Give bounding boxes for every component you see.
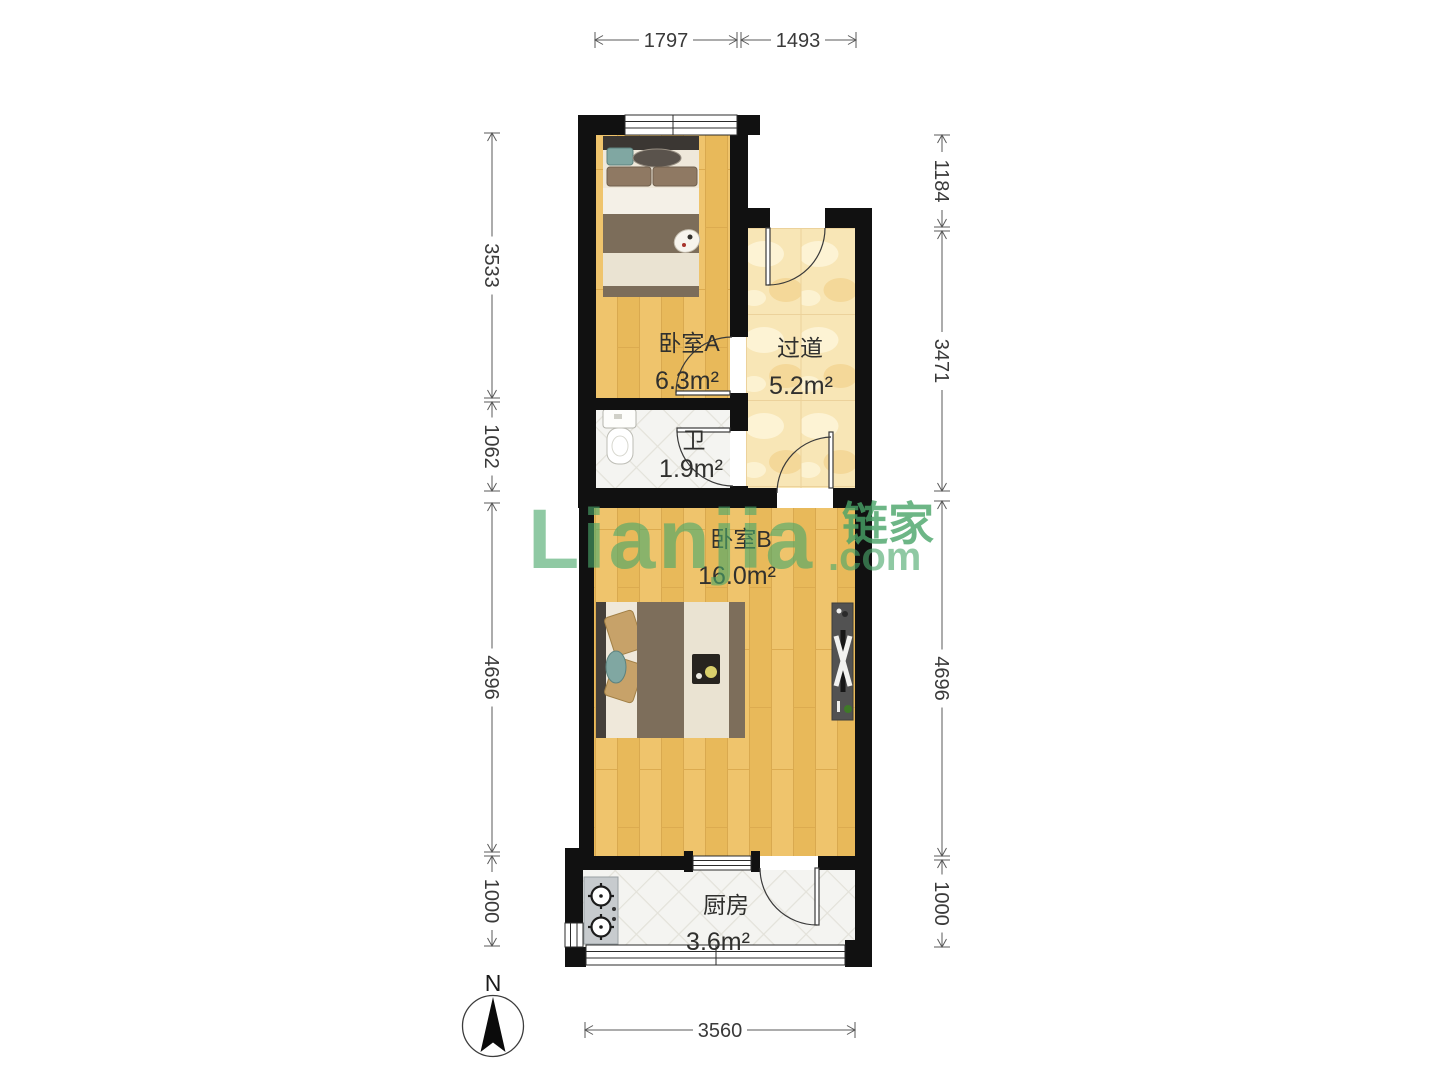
stove-knob — [612, 917, 616, 921]
wall-segment — [818, 856, 872, 870]
kitchen-label: 厨房 — [703, 892, 749, 918]
kitchen-pass-window — [693, 856, 751, 870]
toilet — [603, 409, 636, 464]
stove — [584, 877, 618, 944]
radiator — [832, 603, 853, 720]
watermark: Lianjia .com 链家 — [528, 492, 934, 586]
bedroom-a-label: 卧室A — [658, 330, 720, 356]
burner-dot — [599, 925, 603, 929]
floorplan-page: 卧室A 6.3m² 过道 5.2m² 卫 1.9m² 卧室B 16.0m² 厨房… — [0, 0, 1440, 1080]
svg-text:1000: 1000 — [480, 879, 502, 924]
svg-text:3533: 3533 — [480, 243, 502, 288]
dim-label: 4696 — [929, 650, 955, 708]
bed-a-remote-dot-red — [682, 243, 686, 247]
bedroom-a-area: 6.3m² — [655, 367, 719, 395]
svg-text:1493: 1493 — [776, 30, 821, 52]
bed-a-remote-dot-dark — [688, 235, 693, 240]
dim-label: 3471 — [929, 332, 955, 390]
bathroom-label: 卫 — [683, 427, 706, 453]
svg-text:1000: 1000 — [930, 881, 952, 926]
dim-label: 1493 — [771, 27, 825, 53]
svg-text:1062: 1062 — [480, 424, 502, 469]
dim-label: 1184 — [929, 152, 955, 210]
radiator-mark — [837, 701, 840, 712]
compass: N — [463, 970, 524, 1057]
wall-segment — [730, 115, 748, 337]
dim-label: 1000 — [929, 875, 955, 933]
svg-text:4696: 4696 — [480, 655, 502, 700]
dim-label: 3560 — [693, 1017, 747, 1043]
dim-label: 1062 — [479, 418, 505, 476]
dim-label: 3533 — [479, 237, 505, 295]
burner-dot — [599, 894, 603, 898]
radiator-knob — [837, 609, 842, 614]
plant-icon — [844, 705, 852, 713]
bedroom-b-bed — [596, 602, 745, 738]
bed-b-teal-cushion — [606, 651, 626, 683]
watermark-brand: Lianjia — [528, 492, 815, 586]
window-cap — [684, 851, 693, 872]
dim-label: 1797 — [639, 27, 693, 53]
stove-knob — [612, 907, 616, 911]
wall-segment — [578, 398, 748, 410]
door-leaf — [766, 228, 770, 285]
wall-segment — [565, 947, 586, 967]
dim-label: 4696 — [479, 649, 505, 707]
wall-segment — [746, 208, 770, 228]
svg-text:3560: 3560 — [698, 1020, 743, 1042]
bed-a-sheet — [603, 188, 699, 214]
bedroom-a-window — [625, 115, 737, 135]
wall-segment — [855, 208, 872, 967]
kitchen-west-window — [565, 923, 583, 947]
wall-segment — [578, 115, 596, 508]
window-cap — [751, 851, 760, 872]
hallway-area: 5.2m² — [769, 372, 833, 400]
hallway-label: 过道 — [777, 335, 823, 361]
bed-a-pillow-left — [607, 167, 651, 186]
door-leaf — [815, 868, 819, 925]
wall-segment — [730, 410, 748, 431]
door-leaf — [829, 432, 833, 488]
bed-b-tray-bowl — [705, 666, 717, 678]
bed-a-pillow-right — [653, 167, 697, 186]
svg-text:4696: 4696 — [930, 656, 952, 701]
wall-segment — [845, 940, 872, 967]
north-label: N — [485, 970, 502, 996]
bed-a-tray — [633, 149, 681, 167]
bed-a-foot — [603, 286, 699, 297]
dim-label: 1000 — [479, 872, 505, 930]
svg-text:3471: 3471 — [930, 339, 952, 384]
svg-text:1797: 1797 — [644, 30, 689, 52]
bedroom-a-bed — [603, 136, 703, 297]
bed-b-tray-cup — [696, 673, 702, 679]
svg-text:1184: 1184 — [930, 159, 952, 202]
toilet-bowl — [607, 428, 633, 464]
bathroom-area: 1.9m² — [659, 455, 723, 483]
radiator-knob-dark — [842, 611, 848, 617]
bed-a-teal-pillow — [607, 148, 633, 165]
watermark-cn: 链家 — [842, 498, 934, 550]
wall-segment — [565, 848, 583, 923]
kitchen-area: 3.6m² — [686, 928, 750, 956]
toilet-button — [614, 414, 622, 419]
floorplan-canvas: 卧室A 6.3m² 过道 5.2m² 卫 1.9m² 卧室B 16.0m² 厨房… — [0, 0, 1440, 1080]
bed-a-blanket — [603, 253, 699, 286]
wall-segment — [579, 856, 685, 870]
